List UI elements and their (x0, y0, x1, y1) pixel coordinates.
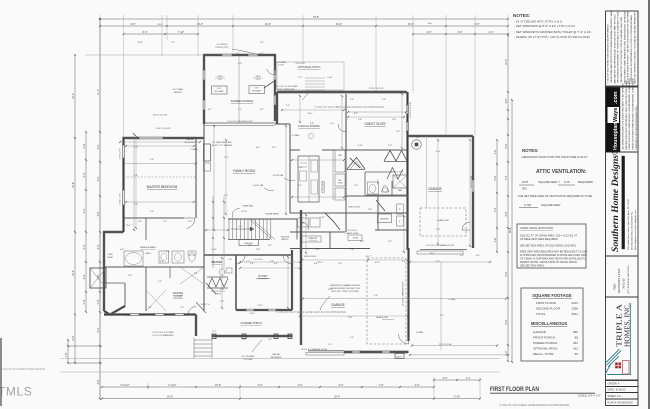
svg-text:8'-6″: 8'-6″ (256, 147, 260, 149)
svg-text:2'-8″: 2'-8″ (350, 249, 354, 251)
svg-text:5'-8″: 5'-8″ (494, 175, 497, 180)
svg-text:30'-0″: 30'-0″ (157, 24, 162, 26)
svg-text:AT 45° X 72″ HEARTH: AT 45° X 72″ HEARTH (212, 144, 233, 147)
svg-text:5'-2″: 5'-2″ (158, 281, 162, 283)
svg-text:9'-8″: 9'-8″ (72, 335, 75, 340)
svg-text:NOTES:: NOTES: (522, 148, 539, 153)
svg-text:© 2022 OF SOUTHERN HOME DESIGN: © 2022 OF SOUTHERN HOME DESIGNZ INCORPOR… (276, 310, 346, 314)
svg-text:5'-8″: 5'-8″ (138, 221, 142, 223)
svg-text:FROM SOUTHERN HOME DESIGNZ, IN: FROM SOUTHERN HOME DESIGNZ, INCORPORATED… (632, 78, 635, 149)
svg-text:2'-0″: 2'-0″ (212, 331, 216, 333)
svg-text:CASUAL DINING: CASUAL DINING (298, 124, 320, 128)
svg-text:20'-0 X 11'-0 OR: 20'-0 X 11'-0 OR (153, 115, 167, 117)
svg-text:THE PLANS FOR THE CONSTRUCTION: THE PLANS FOR THE CONSTRUCTION OF ONE AN… (620, 17, 623, 84)
svg-text:2'-4″: 2'-4″ (194, 273, 198, 275)
svg-text:3'-2″: 3'-2″ (402, 261, 406, 263)
svg-text:3'-6″: 3'-6″ (505, 98, 508, 103)
svg-text:FRONT PORCH: FRONT PORCH (533, 336, 555, 340)
svg-text:4'-0″: 4'-0″ (126, 315, 130, 317)
svg-text:SLAB SLOPE: SLAB SLOPE (376, 316, 388, 319)
svg-text:3'-8″: 3'-8″ (392, 119, 396, 121)
svg-text:2'-4″: 2'-4″ (416, 137, 420, 139)
svg-text:4'-0″: 4'-0″ (188, 221, 192, 223)
svg-text:OPTIONAL PATIO: OPTIONAL PATIO (298, 65, 322, 69)
svg-text:5'-4″: 5'-4″ (260, 42, 264, 44)
svg-text:W: W (399, 209, 401, 211)
svg-text:THE ORIGINAL PURCHASER OF THES: THE ORIGINAL PURCHASER OF THESE PLANS IS… (617, 11, 620, 83)
svg-text:1296: 1296 (571, 307, 578, 311)
svg-text:SLAB SLOPE: SLAB SLOPE (437, 219, 449, 222)
svg-text:2'-8″: 2'-8″ (128, 275, 132, 277)
svg-text:OPEN: OPEN (107, 254, 113, 256)
svg-text:TMLS: TMLS (0, 385, 32, 399)
svg-text:950: 950 (573, 330, 578, 334)
svg-text:15'-0″: 15'-0″ (408, 23, 414, 26)
svg-text:3'-8″: 3'-8″ (97, 211, 100, 216)
svg-text:3'-0″: 3'-0″ (83, 244, 86, 249)
svg-text:7'-4 1/2″: 7'-4 1/2″ (168, 384, 177, 387)
svg-text:SHLVS: SHLVS (215, 294, 221, 296)
svg-text:3'-4″: 3'-4″ (358, 119, 362, 121)
svg-text:6'-1″: 6'-1″ (208, 109, 212, 111)
svg-text:RAIL AS: RAIL AS (186, 138, 194, 141)
svg-text:16'-2″: 16'-2″ (72, 270, 75, 276)
svg-text:5'-0 X 4'-0 TRANSOMS: 5'-0 X 4'-0 TRANSOMS (153, 334, 175, 337)
svg-text:0.700: 0.700 (524, 203, 531, 207)
svg-text:5'-8″: 5'-8″ (382, 99, 386, 101)
svg-text:FIRST FLOOR PLAN: FIRST FLOOR PLAN (490, 386, 539, 393)
svg-text:23'-0 X 13'-6 OR: 23'-0 X 13'-6 OR (156, 128, 171, 130)
svg-text:HEIGHT: HEIGHT (174, 92, 182, 94)
svg-text:KITCHEN: KITCHEN (321, 181, 325, 193)
svg-text:4'-2″: 4'-2″ (298, 185, 302, 187)
svg-text:10'-0″ WALL: 10'-0″ WALL (172, 88, 184, 91)
svg-text:MASTER BEDROOM: MASTER BEDROOM (147, 185, 178, 189)
svg-text:9'-0 X 7'-0: 9'-0 X 7'-0 (201, 304, 211, 306)
svg-text:300: 300 (522, 187, 527, 191)
svg-text:9'-2″: 9'-2″ (236, 53, 240, 55)
svg-text:18'-8″: 18'-8″ (72, 182, 75, 188)
svg-text:BEFORE CONSTRUCTION BEGINS. O: BEFORE CONSTRUCTION BEGINS. ONLY CONSTRU… (625, 80, 628, 150)
svg-text:OVEN: OVEN (338, 183, 344, 185)
svg-text:POSTS (TYP.): POSTS (TYP.) (216, 47, 229, 49)
svg-text:HOME DESIGNZ INCORPORATED, IS: HOME DESIGNZ INCORPORATED, IS STRICTLY P… (630, 15, 633, 84)
svg-text:4'-8″: 4'-8″ (494, 237, 497, 242)
svg-text:4'-2″: 4'-2″ (268, 245, 272, 247)
svg-text:18'-0″: 18'-0″ (427, 23, 432, 25)
svg-text:CATH: CATH (256, 75, 261, 78)
svg-text:2'-10″: 2'-10″ (319, 217, 324, 219)
svg-text:2215: 2215 (571, 301, 578, 305)
svg-text:9'-8″: 9'-8″ (374, 295, 378, 297)
svg-text:- 10'-0″ CEILING HGT. (TYP.): - 10'-0″ CEILING HGT. (TYP.) U.N.O. (514, 19, 563, 23)
svg-text:10'-0″: 10'-0″ (265, 23, 271, 26)
svg-text:6'-5 1/2″: 6'-5 1/2″ (121, 384, 130, 387)
svg-text:THE: THE (613, 283, 617, 290)
svg-text:7'-0″: 7'-0″ (298, 77, 302, 79)
svg-text:3'-0″: 3'-0″ (83, 274, 86, 279)
svg-text:CLG: CLG (256, 79, 260, 81)
svg-text:21'-8″: 21'-8″ (347, 317, 352, 319)
svg-text:SCREEN PORCH: SCREEN PORCH (231, 99, 254, 103)
svg-text:7'-2″: 7'-2″ (171, 42, 175, 44)
svg-text:STAIR RAIL: STAIR RAIL (243, 205, 255, 208)
svg-text:W' COLUMNS: W' COLUMNS (242, 356, 255, 358)
svg-text:3'-0″: 3'-0″ (440, 315, 444, 317)
svg-text:GARAGE: GARAGE (533, 330, 546, 334)
svg-text:STOR: STOR (353, 238, 359, 240)
svg-text:1'-4″: 1'-4″ (466, 377, 471, 380)
svg-text:19'-8″: 19'-8″ (167, 396, 173, 399)
svg-text:6'-4″: 6'-4″ (350, 337, 354, 339)
svg-text:17'-10″: 17'-10″ (241, 211, 247, 213)
svg-text:5'-4″: 5'-4″ (160, 261, 164, 263)
svg-text:3'-6″: 3'-6″ (248, 245, 252, 247)
svg-text:LAUNDRY: LAUNDRY (380, 218, 390, 221)
svg-text:PANTRY: PANTRY (281, 238, 289, 241)
svg-text:SINGLE FAMILY HOME. REPRODUCT: SINGLE FAMILY HOME. REPRODUCTION, MODIFI… (623, 11, 626, 83)
svg-text:2'-8″: 2'-8″ (83, 143, 86, 148)
svg-text:9'-0 X 8'-0 O.H. GARAGE DOOR: 9'-0 X 8'-0 O.H. GARAGE DOOR (426, 244, 454, 247)
svg-text:2'-6″: 2'-6″ (150, 159, 154, 161)
svg-text:GARAGE: GARAGE (331, 303, 345, 307)
svg-text:4'-0″: 4'-0″ (476, 255, 480, 257)
svg-text:2'-8 X 5'-2 SH: 2'-8 X 5'-2 SH (120, 193, 122, 205)
svg-text:Web: shdplans.com Email:: Web: shdplans.com Email: shdplans.com (635, 210, 637, 250)
svg-text:6'-0″: 6'-0″ (120, 249, 124, 251)
svg-text:.com: .com (613, 91, 619, 104)
svg-text:CASED OPEN: CASED OPEN (345, 232, 359, 235)
svg-text:Southern Home Designs®: Southern Home Designs® (610, 148, 621, 252)
svg-text:© 2022 OF SOUTHERN HOME DESIGN: © 2022 OF SOUTHERN HOME DESIGNZ INCORPOR… (499, 403, 569, 407)
svg-text:5'-0 X 6'-8: 5'-0 X 6'-8 (348, 230, 358, 232)
svg-text:- SET WINDOW IN MASTER BATH T: - SET WINDOW IN MASTER BATH TOILET @ 7'-… (514, 30, 592, 34)
svg-text:FROM ANY FURTHER RESPONSIBILIT: FROM ANY FURTHER RESPONSIBILITIES. (635, 105, 638, 149)
svg-text:6'-10″: 6'-10″ (327, 77, 332, 79)
svg-text:16'-4″: 16'-4″ (374, 262, 379, 264)
svg-text:3'-0″: 3'-0″ (97, 244, 100, 249)
svg-text:ALL DIMENSIONS AND SITE CONDIT: ALL DIMENSIONS AND SITE CONDITIONS ARE T… (622, 83, 625, 149)
svg-text:MECH. / STOR.: MECH. / STOR. (533, 352, 554, 356)
svg-text:5'-4″: 5'-4″ (354, 185, 358, 187)
svg-text:56: 56 (575, 352, 579, 356)
svg-text:THE NET FREE AREA OF VENTILATI: THE NET FREE AREA OF VENTILATION REQUIRE… (518, 194, 592, 198)
svg-text:8 X 8: 8 X 8 (217, 88, 221, 90)
svg-text:4″ WALL: 4″ WALL (416, 331, 425, 334)
svg-text:AND MAY NOT BE REPRODUCED IN W: AND MAY NOT BE REPRODUCED IN WHOLE OR IN… (613, 13, 616, 83)
svg-text:3511: 3511 (572, 312, 579, 316)
svg-text:7'-0″: 7'-0″ (505, 175, 508, 180)
svg-text:1575: 1575 (522, 180, 529, 184)
svg-text:4'-4″: 4'-4″ (316, 249, 320, 251)
svg-text:4'-0″: 4'-0″ (330, 123, 334, 125)
svg-text:4″ WALL: 4″ WALL (190, 148, 199, 151)
svg-text:3'-4″: 3'-4″ (97, 327, 100, 332)
svg-text:GARAGE: GARAGE (428, 187, 442, 191)
svg-text:FLOOR OAK: FLOOR OAK (253, 184, 264, 187)
svg-text:78′-8″: 78′-8″ (313, 16, 319, 19)
svg-text:COVERED PORCH: COVERED PORCH (240, 322, 261, 325)
svg-text:16″ SCREEN: 16″ SCREEN (276, 62, 286, 64)
svg-text:9'-9″: 9'-9″ (131, 23, 136, 26)
svg-text:2'-8″: 2'-8″ (396, 131, 400, 133)
svg-text:16'-0 X 8'-0 GARAGE DOOR: 16'-0 X 8'-0 GARAGE DOOR (301, 348, 327, 351)
svg-text:CRAWL SPACE VENTILATION: CRAWL SPACE VENTILATION (520, 227, 553, 230)
svg-text:4'-8″: 4'-8″ (314, 263, 318, 265)
svg-text:REQUIRED: REQUIRED (578, 180, 593, 184)
svg-text:19'-0″: 19'-0″ (307, 113, 312, 115)
svg-text:REQUIRED: REQUIRED (271, 357, 282, 359)
svg-text:12'-2″: 12'-2″ (327, 289, 332, 291)
svg-text:20'-0 X 11'-0 X 8'-0 FIXED: 20'-0 X 11'-0 X 8'-0 FIXED (274, 86, 298, 88)
svg-text:242: 242 (573, 341, 578, 345)
svg-text:SQUARE FOOTAGE: SQUARE FOOTAGE (532, 293, 572, 298)
svg-text:ORDER: A: ORDER: A (608, 383, 620, 386)
svg-text:© 2022 OF SOUTHERN HOME DESIGN: © 2022 OF SOUTHERN HOME DESIGNZ INCORPOR… (607, 24, 610, 84)
svg-text:2'-6″: 2'-6″ (443, 377, 448, 380)
svg-text:NOTES:: NOTES: (513, 13, 531, 18)
svg-text:3'-6″: 3'-6″ (97, 379, 100, 384)
svg-text:4'-10″: 4'-10″ (357, 145, 362, 147)
svg-text:SQUARE FEET.: SQUARE FEET. (541, 203, 561, 207)
svg-text:SHEET: A-2: SHEET: A-2 (608, 395, 622, 398)
svg-text:THESE PLANS ARE PROTECTED UNDE: THESE PLANS ARE PROTECTED UNDER FEDERAL … (610, 10, 613, 84)
svg-text:7'-2″: 7'-2″ (238, 109, 242, 111)
svg-text:2'-6″: 2'-6″ (150, 211, 154, 213)
svg-text:3'-0″: 3'-0″ (258, 384, 263, 387)
svg-text:DATE: 10-06-22: DATE: 10-06-22 (608, 389, 626, 392)
svg-text:SHEETROCK GARAGE CEILING: SHEETROCK GARAGE CEILING (330, 284, 361, 287)
svg-text:AS PER NCRBC 2018 SECTION: AS PER NCRBC 2018 SECTION (330, 287, 360, 290)
svg-text:2'-8″: 2'-8″ (368, 209, 372, 211)
svg-text:TRIPLE A: TRIPLE A (616, 303, 624, 347)
svg-text:5'-8″: 5'-8″ (250, 263, 254, 265)
svg-text:4'-0″: 4'-0″ (238, 63, 242, 65)
svg-text:SQUARE FEET =: SQUARE FEET = (538, 180, 560, 184)
svg-text:4'-10″: 4'-10″ (211, 249, 216, 251)
svg-text:16'-4″: 16'-4″ (336, 23, 342, 26)
svg-text:7'-0″: 7'-0″ (163, 221, 167, 223)
svg-text:BATH: BATH (145, 252, 151, 255)
svg-text:PLAN #: KB-DESIGN3: PLAN #: KB-DESIGN3 (608, 401, 634, 404)
svg-text:12'-4″: 12'-4″ (317, 262, 322, 264)
svg-text:FAMILY ROOM: FAMILY ROOM (233, 169, 255, 173)
svg-text:17'-0″: 17'-0″ (125, 225, 130, 227)
svg-text:OF FREE VENT AREA REQUIRED: OF FREE VENT AREA REQUIRED (520, 238, 558, 241)
svg-text:4 J 4 WOOD: 4 J 4 WOOD (216, 44, 228, 46)
svg-text:GUEST SUITE: GUEST SUITE (364, 122, 385, 126)
svg-text:3'-0″: 3'-0″ (97, 144, 100, 149)
svg-text:5'-4″: 5'-4″ (350, 99, 354, 101)
svg-text:3'-0″: 3'-0″ (388, 241, 392, 243)
svg-text:- SET WINDOWS @ 8'-0″ A.F.F.: - SET WINDOWS @ 8'-0″ A.F.F. (TYP.) U.N.… (514, 24, 575, 28)
svg-text:W/10″ TRANSOMS: W/10″ TRANSOMS (277, 88, 295, 91)
svg-text:SECOND FLOOR: SECOND FLOOR (536, 307, 561, 311)
svg-text:4'-6″: 4'-6″ (298, 384, 303, 387)
svg-text:9'-8″: 9'-8″ (505, 271, 508, 276)
svg-text:7'-10″: 7'-10″ (178, 31, 184, 34)
svg-text:(LOT 44 RIDGE CROSSING): (LOT 44 RIDGE CROSSING) (627, 265, 630, 294)
svg-text:919-363-5002 Office 919-30: 919-363-5002 Office 919-303-5007 Fax (631, 211, 633, 250)
svg-text:4″ WALL: 4″ WALL (448, 298, 457, 301)
svg-text:SEAT: SEAT (398, 189, 402, 192)
svg-text:22'-8 X 11'-9 OR: 22'-8 X 11'-9 OR (369, 88, 384, 90)
svg-text:SHWR: SHWR (107, 257, 113, 259)
svg-text:SCREEN PORCH: SCREEN PORCH (533, 341, 557, 345)
svg-text:2'-2″: 2'-2″ (286, 105, 290, 107)
svg-text:8'-4″: 8'-4″ (354, 113, 358, 115)
svg-text:11'-6″: 11'-6″ (298, 167, 303, 169)
svg-text:7'-0″: 7'-0″ (180, 307, 184, 309)
svg-text:5.25: 5.25 (564, 180, 570, 184)
svg-text:10'-2″: 10'-2″ (365, 256, 370, 258)
svg-text:RAIL AS: RAIL AS (272, 353, 280, 356)
svg-text:3'-4″: 3'-4″ (97, 176, 100, 181)
svg-text:3'-2″: 3'-2″ (505, 350, 508, 355)
svg-text:9'-0″: 9'-0″ (505, 143, 508, 148)
svg-text:7'-4″: 7'-4″ (148, 307, 152, 309)
svg-text:4'-4″: 4'-4″ (489, 31, 494, 34)
svg-text:2'-6″: 2'-6″ (415, 384, 420, 387)
svg-text:9'-8″: 9'-8″ (505, 319, 508, 324)
svg-text:12'-0 X 8'-0 SLIDING DOOR: 12'-0 X 8'-0 SLIDING DOOR (227, 121, 253, 123)
svg-text:33'-4″: 33'-4″ (334, 396, 340, 399)
svg-text:4'-8″: 4'-8″ (427, 31, 432, 34)
svg-text:1'-8″: 1'-8″ (65, 352, 68, 357)
svg-text:FLOOR OAK: FLOOR OAK (273, 174, 284, 177)
svg-text:302.6 (1/2″ TYPE X GYPSUM): 302.6 (1/2″ TYPE X GYPSUM) (331, 291, 359, 293)
svg-text:4'-6″: 4'-6″ (274, 263, 278, 265)
svg-text:5'-0″: 5'-0″ (328, 344, 332, 346)
svg-text:CLG: CLG (218, 79, 222, 81)
svg-text:Houseplans: Houseplans (613, 119, 619, 150)
svg-text:12'-0″: 12'-0″ (505, 59, 508, 65)
svg-text:CATH: CATH (218, 75, 223, 78)
svg-text:42″ GAS FIREPLACE: 42″ GAS FIREPLACE (212, 141, 232, 144)
svg-text:7'-4″: 7'-4″ (268, 339, 272, 341)
svg-text:ATTIC VENTILATION:: ATTIC VENTILATION: (536, 169, 587, 175)
svg-text:KENNEDY LYNN: KENNEDY LYNN (617, 268, 621, 294)
svg-text:8'-0″: 8'-0″ (242, 339, 246, 341)
svg-text:TOTAL: TOTAL (536, 312, 546, 316)
svg-text:59'-8″: 59'-8″ (509, 227, 512, 233)
svg-text:REQUIRED: REQUIRED (185, 142, 196, 144)
svg-text:ANY USE THEREOF IS SUBJECT TO: ANY USE THEREOF IS SUBJECT TO LEGAL ACTI… (633, 12, 636, 84)
svg-text:SCALE: 1/4″ = 1'-0″: SCALE: 1/4″ = 1'-0″ (578, 394, 601, 398)
svg-text:POWDER: POWDER (212, 261, 223, 264)
svg-text:3'-0″: 3'-0″ (83, 172, 86, 177)
svg-text:11'-4″: 11'-4″ (97, 89, 100, 95)
svg-text:MUD ROOM: MUD ROOM (304, 256, 316, 258)
svg-text:412: 412 (573, 347, 578, 351)
svg-text:3012-D: 3012-D (622, 278, 626, 289)
svg-text:10'-0″: 10'-0″ (429, 253, 434, 255)
svg-text:5'-4″: 5'-4″ (166, 251, 170, 253)
svg-text:5'-0 X 8'-0: 5'-0 X 8'-0 (254, 259, 264, 261)
svg-text:2'-8 X 6'-8 X 2'-0 SH: 2'-8 X 6'-8 X 2'-0 SH (410, 101, 412, 118)
svg-text:SEE SECTION R408.1 OF 2018 NCR: SEE SECTION R408.1 OF 2018 NCRBC (2015 I… (520, 245, 576, 248)
svg-text:MISCELLANEOUS: MISCELLANEOUS (531, 321, 568, 326)
svg-text:7'-8″: 7'-8″ (379, 384, 384, 387)
svg-text:5'-0″: 5'-0″ (338, 263, 342, 265)
svg-text:2'-0″: 2'-0″ (97, 299, 100, 304)
svg-text:• MEAN ROOF HEIGHT FOR THIS: • MEAN ROOF HEIGHT FOR THIS STRUCTURE IS… (521, 156, 588, 159)
svg-text:6'-8″: 6'-8″ (360, 241, 364, 243)
svg-text:3'-8″: 3'-8″ (256, 249, 260, 251)
svg-text:BATH: BATH (377, 179, 380, 184)
svg-text:6'-8″: 6'-8″ (505, 211, 508, 216)
svg-text:CLOSET: CLOSET (173, 296, 183, 299)
svg-text:6″ WALL: 6″ WALL (292, 134, 301, 137)
svg-text:OF THESE PLANS WITHOUT THE WRI: OF THESE PLANS WITHOUT THE WRITTEN CONSE… (627, 10, 630, 83)
svg-text:2'-8 X 6'-8 X 1'-0 FIXED: 2'-8 X 6'-8 X 1'-0 FIXED (152, 332, 174, 334)
svg-text:SEE SECTION R408.1.: SEE SECTION R408.1. (520, 265, 545, 268)
svg-text:3'-8″: 3'-8″ (388, 145, 392, 147)
svg-text:(TYPICAL): (TYPICAL) (243, 358, 253, 361)
svg-text:2'-8 X 5'-2 SH: 2'-8 X 5'-2 SH (471, 175, 473, 188)
svg-text:CEDAR WRAP: CEDAR WRAP (265, 213, 279, 216)
svg-text:PANTRY: PANTRY (309, 237, 318, 240)
svg-text:MUD ROOM: MUD ROOM (348, 207, 360, 209)
svg-text:2'-8 X 5'-2 SH: 2'-8 X 5'-2 SH (120, 148, 122, 160)
svg-text:- STAIRS: UP 17 R (TYP.), 1S: - STAIRS: UP 17 R (TYP.), 1ST FLOOR TO 2… (514, 35, 591, 39)
svg-text:7'-0″: 7'-0″ (494, 207, 497, 212)
svg-text:3'-10″: 3'-10″ (454, 396, 460, 399)
svg-text:8'-8″: 8'-8″ (475, 23, 480, 26)
svg-text:3'-0″: 3'-0″ (272, 147, 276, 149)
svg-text:FROM SOUTHERN HOME DESIGNZ, IN: FROM SOUTHERN HOME DESIGNZ, INCORPORATED… (628, 78, 631, 149)
svg-text:301 South Salem Street, Suite: 301 South Salem Street, Suite 100, Apex,… (627, 198, 630, 250)
svg-text:8 X 8: 8 X 8 (254, 88, 258, 90)
svg-text:4'-2″: 4'-2″ (83, 208, 86, 213)
svg-text:88: 88 (575, 336, 579, 340)
svg-text:2'-0″: 2'-0″ (83, 299, 86, 304)
svg-text:16'-4″: 16'-4″ (72, 93, 75, 99)
svg-text:Ways: Ways (613, 108, 619, 122)
svg-text:MASTER BATH: MASTER BATH (140, 246, 156, 249)
svg-text:© 2022 OF SOUTHERN HOME DESIGN: © 2022 OF SOUTHERN HOME DESIGNZ (0, 368, 45, 371)
svg-text:STUDY: STUDY (258, 274, 268, 278)
svg-text:16'-8″: 16'-8″ (137, 42, 142, 44)
svg-text:16'-0 X 8'-0 GARAGE DOOR: 16'-0 X 8'-0 GARAGE DOOR (402, 281, 405, 306)
svg-text:4'-0″: 4'-0″ (458, 31, 463, 34)
svg-text:11'-0″: 11'-0″ (250, 313, 255, 315)
svg-text:OPTIONAL PATIO: OPTIONAL PATIO (533, 347, 558, 351)
svg-text:FIRST FLOOR: FIRST FLOOR (536, 301, 557, 305)
svg-text:8'-4″: 8'-4″ (143, 31, 148, 34)
svg-text:2'-0″: 2'-0″ (460, 255, 464, 257)
svg-text:6'-1″: 6'-1″ (260, 109, 264, 111)
svg-text:11'-0″: 11'-0″ (258, 305, 263, 307)
svg-text:© 2022 OF SOUTHERN HOME DESIGN: © 2022 OF SOUTHERN HOME DESIGNZ INCORPOR… (314, 105, 384, 109)
svg-text:MECH: MECH (396, 357, 402, 359)
svg-text:4'-6″: 4'-6″ (339, 384, 344, 387)
svg-text:4'-6″: 4'-6″ (494, 149, 497, 154)
svg-text:6'-1″: 6'-1″ (260, 53, 264, 55)
svg-text:UP: UP (238, 226, 242, 228)
svg-text:15'-8″: 15'-8″ (215, 384, 221, 387)
